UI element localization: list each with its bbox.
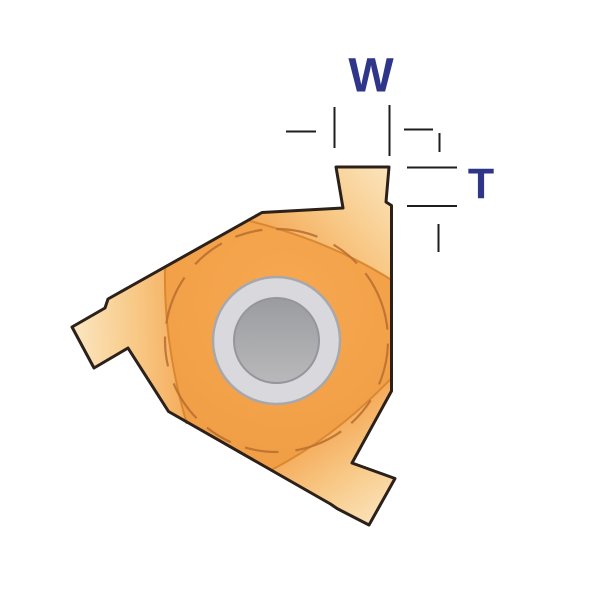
width-label: W <box>348 50 394 103</box>
width-dimension: W <box>286 50 440 157</box>
thickness-label: T <box>468 160 494 208</box>
center-hole-bore <box>234 298 319 383</box>
insert-body <box>72 167 419 525</box>
threading-insert-diagram: W T <box>0 0 600 600</box>
diagram-canvas: W T <box>0 0 600 600</box>
thickness-dimension: T <box>407 160 494 252</box>
